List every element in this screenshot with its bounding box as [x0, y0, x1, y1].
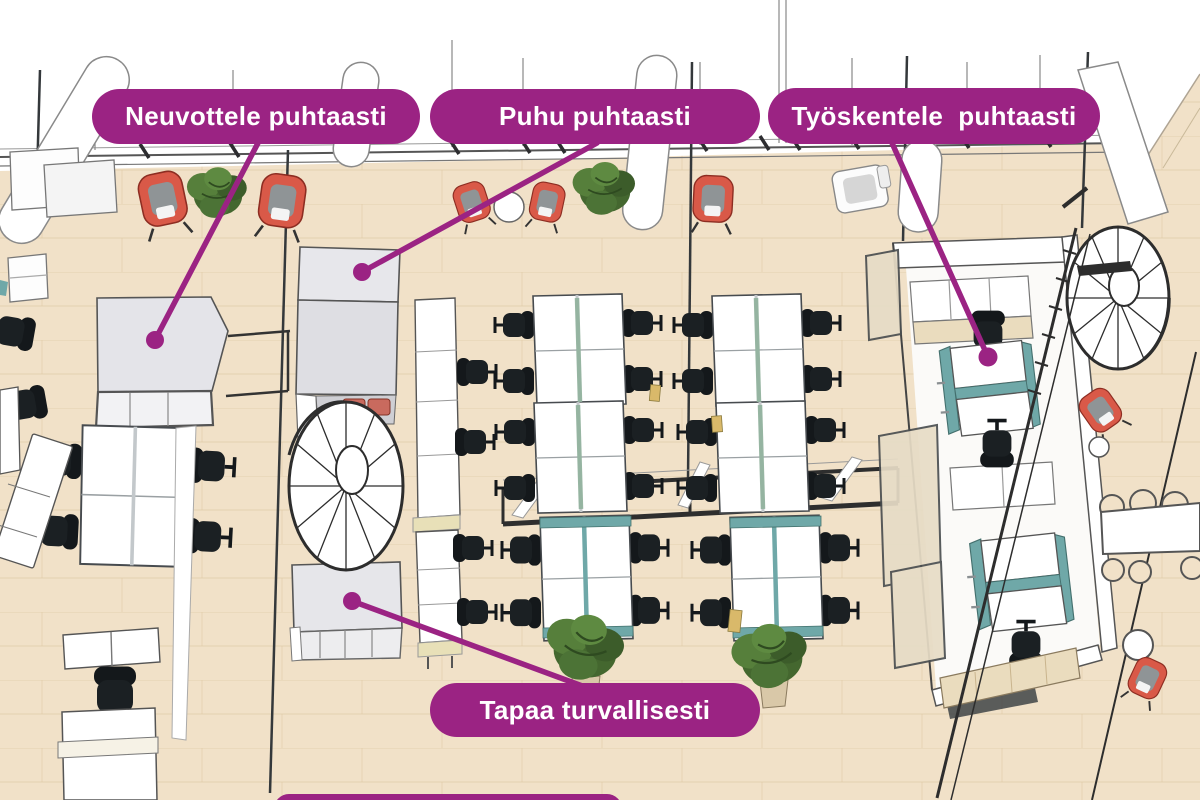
long-table: [1101, 503, 1200, 554]
stool: [1123, 630, 1153, 660]
callout-dot-tapaa: [343, 592, 361, 610]
spiral-staircase-left: [289, 402, 403, 570]
callout-label-tyoskentele: Työskentele puhtaasti: [768, 88, 1100, 144]
callout-dot-tyoskentele: [979, 348, 998, 367]
callout-label-bottom-partial: [274, 794, 622, 800]
spiral-staircase-right: [1067, 227, 1169, 369]
reception-desk: [58, 708, 158, 800]
callout-label-puhu: Puhu puhtaasti: [430, 89, 760, 144]
floor-plan-graphic: Neuvottele puhtaasti Puhu puhtaasti Työs…: [0, 0, 1200, 800]
stool: [1089, 437, 1109, 457]
callout-label-tapaa: Tapaa turvallisesti: [430, 683, 760, 737]
callout-dot-neuvottele: [146, 331, 164, 349]
callout-dot-puhu: [353, 263, 371, 281]
callout-label-neuvottele: Neuvottele puhtaasti: [92, 89, 420, 144]
